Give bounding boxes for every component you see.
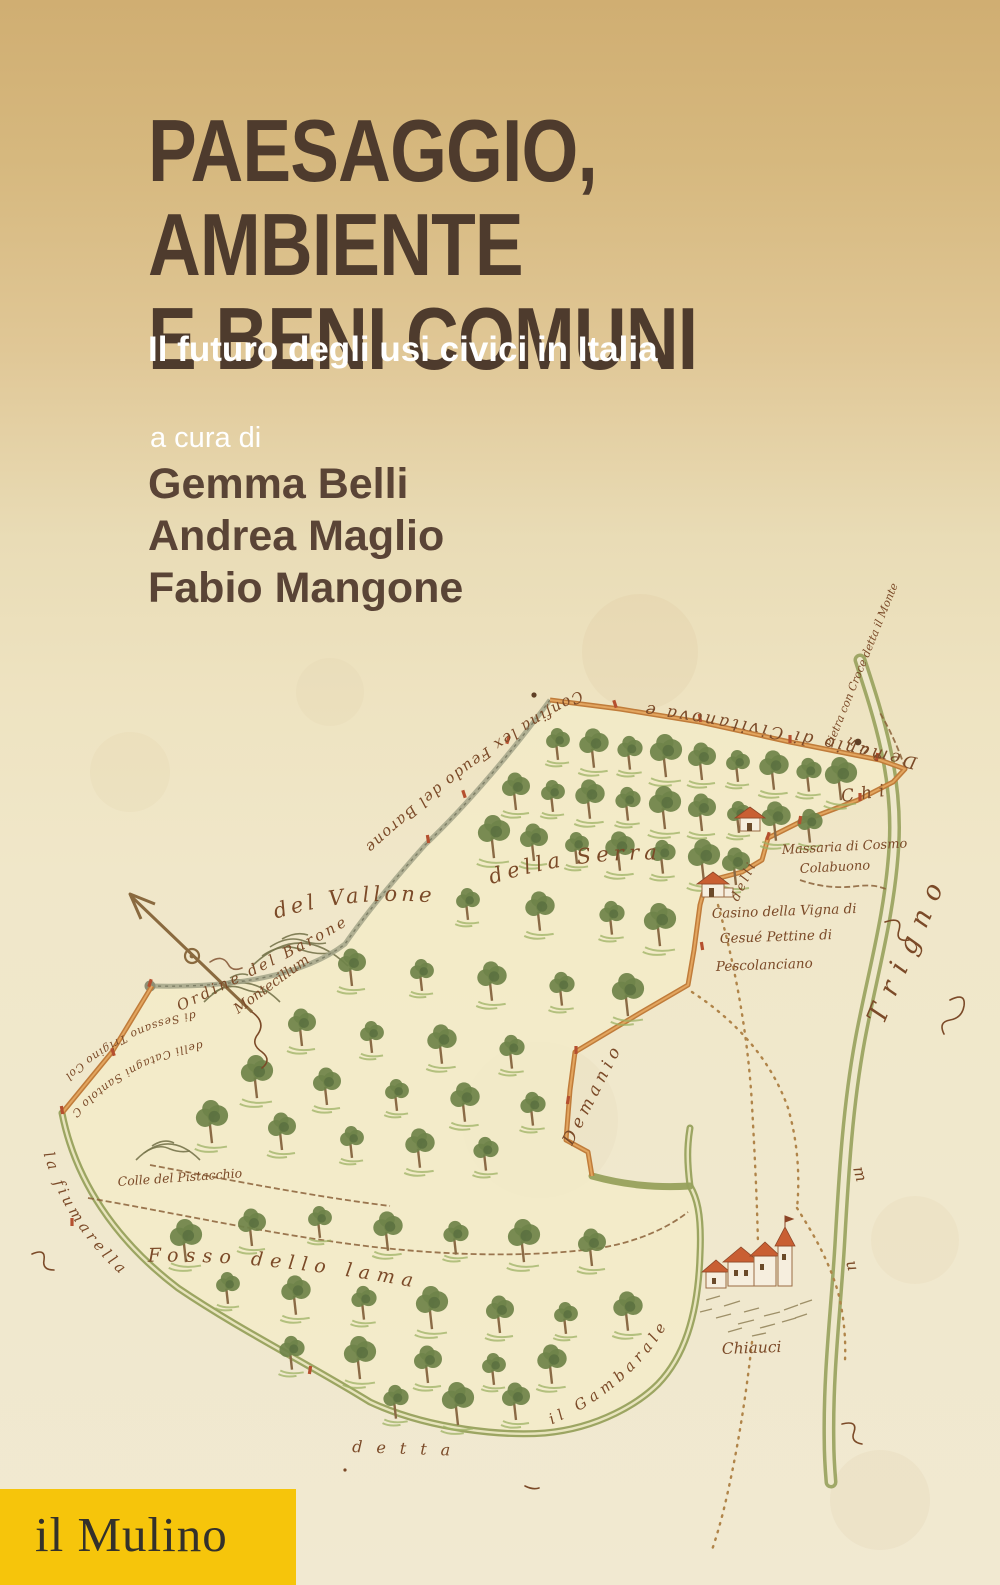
editor-name: Fabio Mangone xyxy=(148,562,463,614)
boundary-post xyxy=(700,942,704,950)
editors-list: Gemma Belli Andrea Maglio Fabio Mangone xyxy=(148,458,463,614)
publisher-name: il Mulino xyxy=(0,1489,296,1581)
title-line-1: PAESAGGIO, xyxy=(148,104,697,198)
subtitle: Il futuro degli usi civici in Italia xyxy=(148,330,658,370)
map-label-chiauci: Chiauci xyxy=(722,1338,782,1358)
map-label-frag-m: m xyxy=(849,1164,871,1184)
map-label-casino-1: Casino della Vigna di xyxy=(712,901,857,922)
dotted-trails xyxy=(692,905,845,1550)
map-label-casino-3: Pescolanciano xyxy=(715,956,813,975)
map-label-casino-2: Gesué Pettine di xyxy=(720,927,833,947)
map-label-massaria-2: Colabuono xyxy=(799,858,870,877)
map-label-pietra: Pietra con Croce detta il Monte xyxy=(822,581,900,750)
editor-name: Gemma Belli xyxy=(148,458,463,510)
book-cover: Demanio di Civitanova e Confina lex Feud… xyxy=(0,0,1000,1585)
chiauci-village xyxy=(700,1216,812,1336)
title-line-2: AMBIENTE xyxy=(148,198,697,292)
map-label-frag-u: u xyxy=(842,1258,863,1273)
publisher-logo: il Mulino xyxy=(0,1489,296,1585)
curated-by-label: a cura di xyxy=(150,422,261,455)
boundary-post xyxy=(574,1046,577,1054)
map-label-detta: detta xyxy=(352,1437,465,1460)
editor-name: Andrea Maglio xyxy=(148,510,463,562)
boundary-post xyxy=(461,790,467,799)
